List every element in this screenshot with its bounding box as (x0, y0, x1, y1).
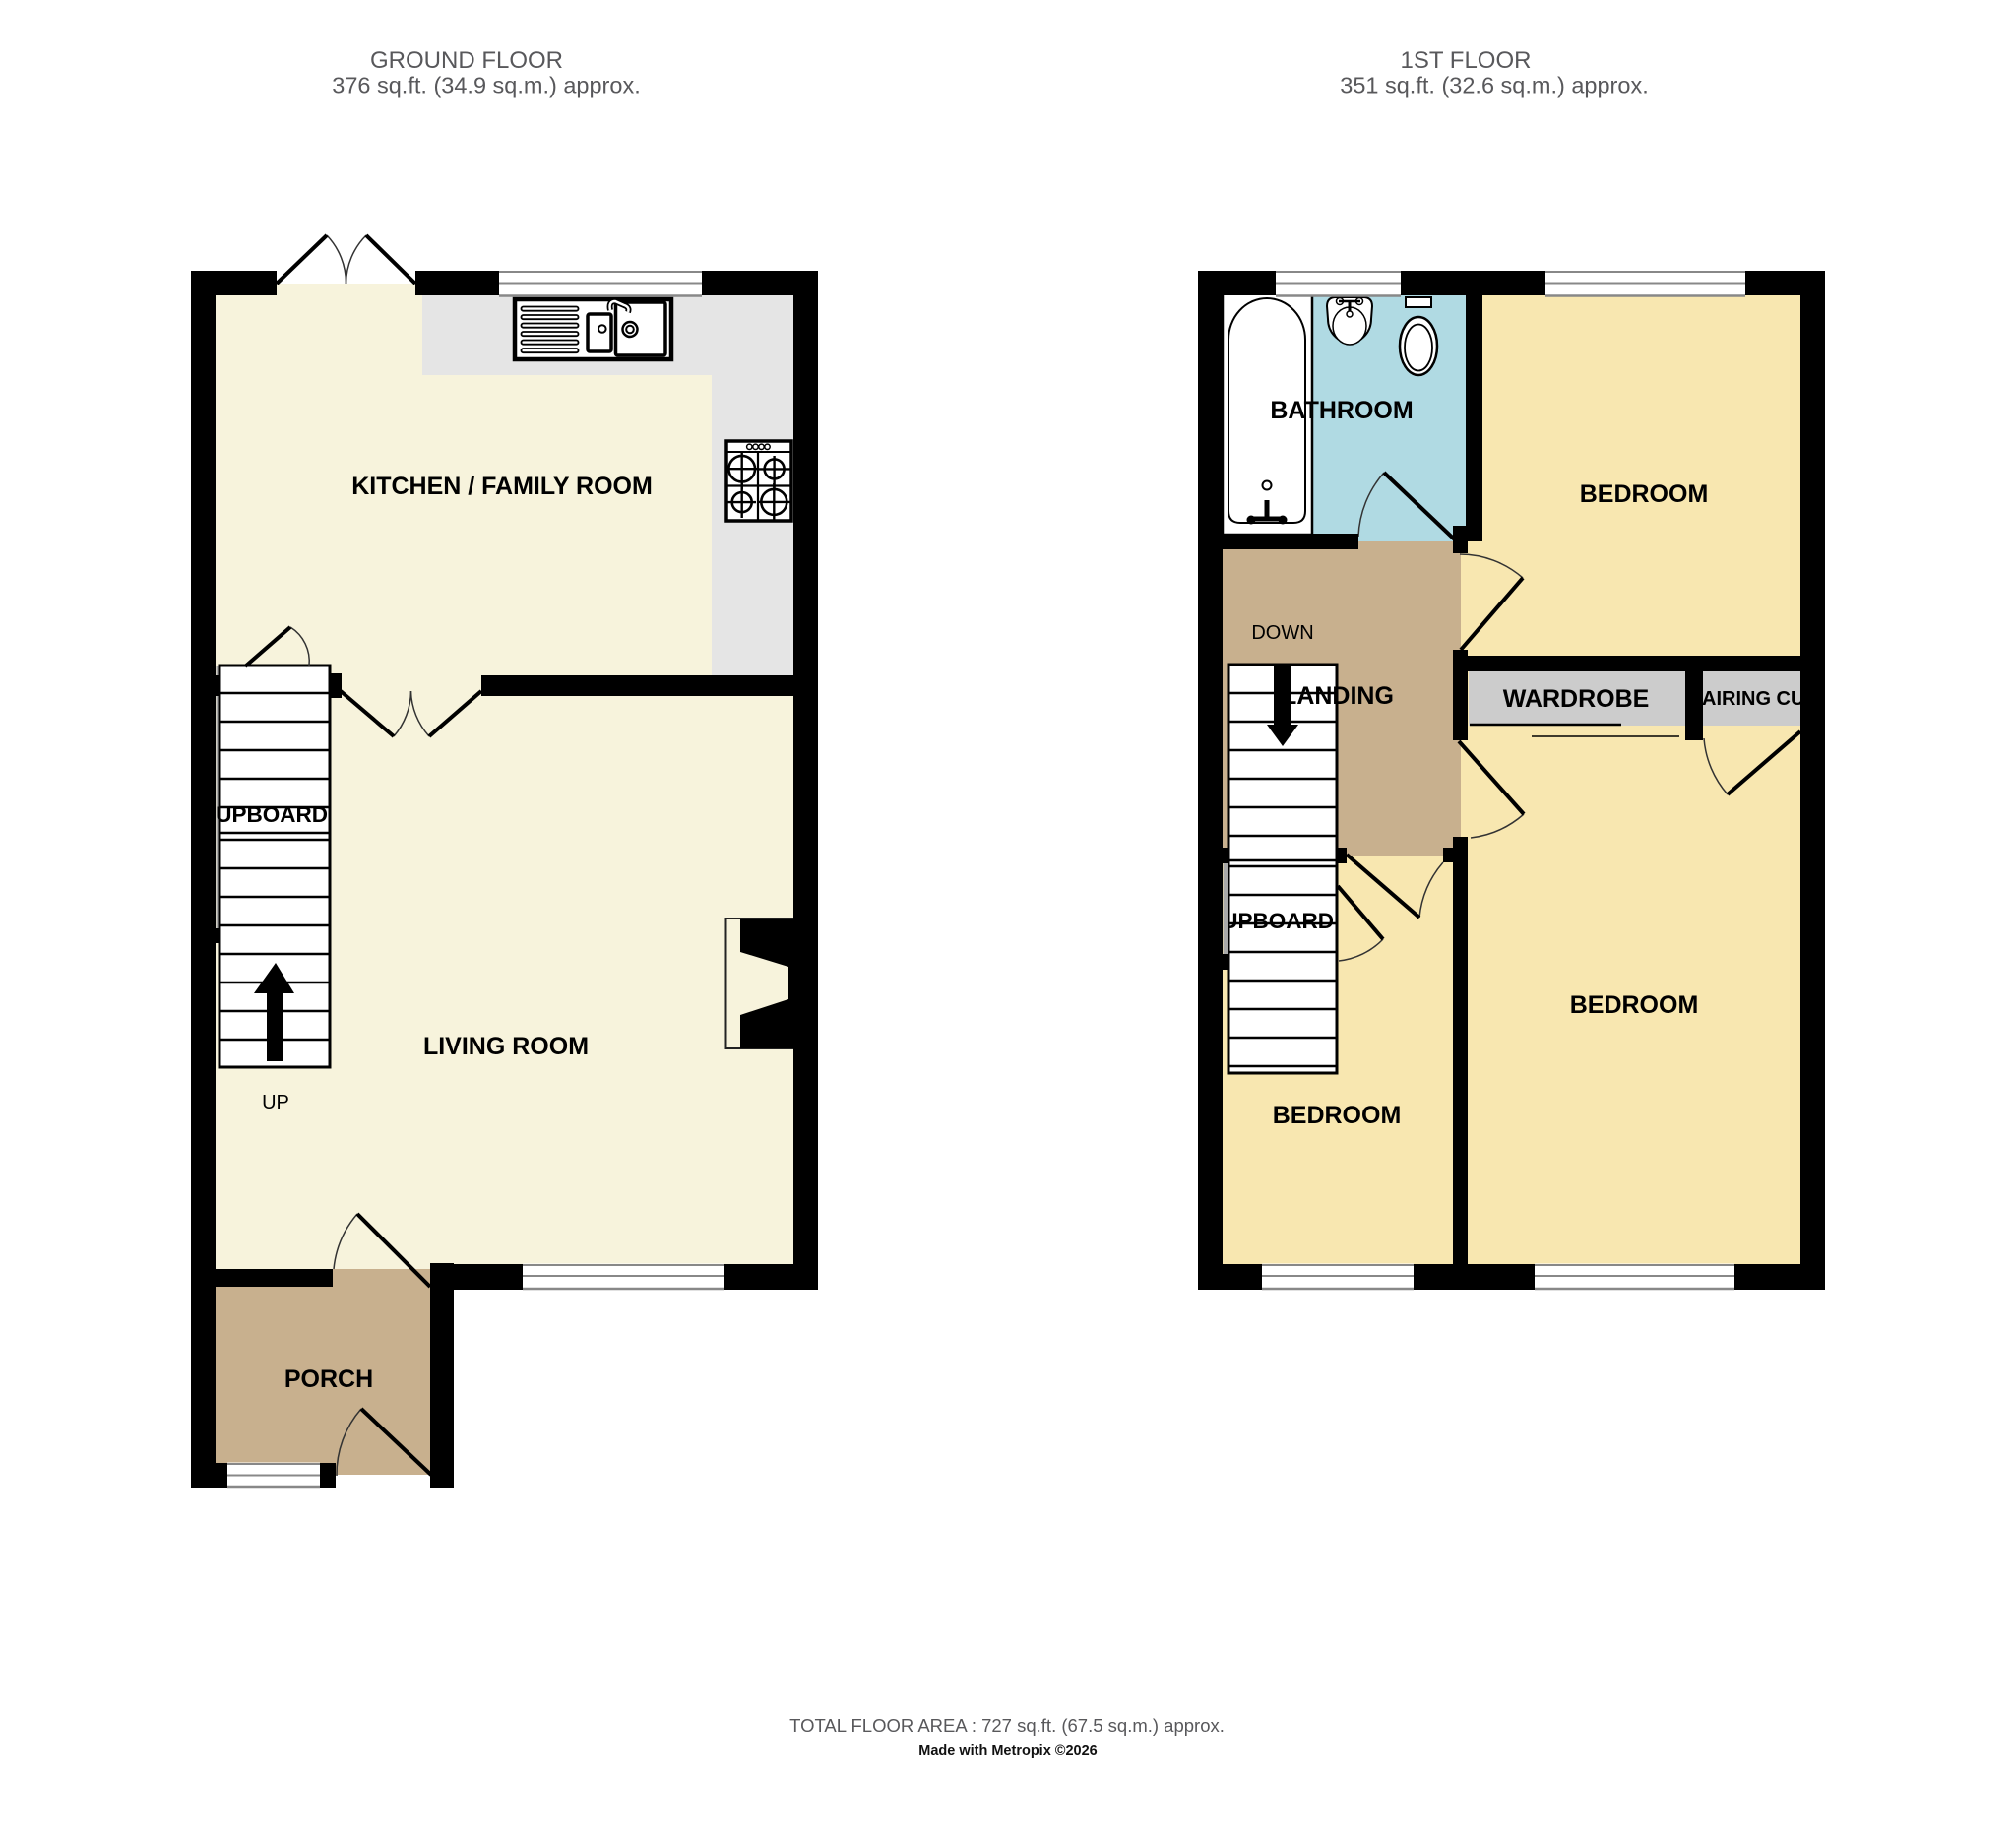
svg-text:PORCH: PORCH (284, 1365, 373, 1393)
svg-text:BATHROOM: BATHROOM (1270, 397, 1413, 424)
svg-text:GROUND FLOOR: GROUND FLOOR (370, 47, 563, 74)
svg-text:KITCHEN / FAMILY ROOM: KITCHEN / FAMILY ROOM (351, 473, 653, 500)
svg-text:TOTAL FLOOR AREA : 727 sq.ft.: TOTAL FLOOR AREA : 727 sq.ft. (67.5 sq.m… (789, 1715, 1225, 1736)
svg-text:351 sq.ft. (32.6 sq.m.) approx: 351 sq.ft. (32.6 sq.m.) approx. (1340, 73, 1649, 98)
svg-text:LIVING ROOM: LIVING ROOM (423, 1033, 589, 1060)
svg-text:BEDROOM: BEDROOM (1273, 1102, 1402, 1129)
svg-text:UP: UP (262, 1092, 289, 1113)
svg-text:1ST FLOOR: 1ST FLOOR (1401, 47, 1532, 74)
svg-text:376 sq.ft. (34.9 sq.m.) approx: 376 sq.ft. (34.9 sq.m.) approx. (332, 73, 641, 98)
svg-text:CUPBOARD: CUPBOARD (200, 802, 328, 827)
svg-text:LANDING: LANDING (1282, 682, 1394, 710)
svg-text:DOWN: DOWN (1251, 622, 1313, 644)
svg-text:WARDROBE: WARDROBE (1503, 685, 1650, 713)
svg-text:BEDROOM: BEDROOM (1570, 991, 1699, 1019)
svg-text:BEDROOM: BEDROOM (1580, 480, 1709, 508)
svg-text:Made with Metropix ©2026: Made with Metropix ©2026 (918, 1744, 1098, 1759)
